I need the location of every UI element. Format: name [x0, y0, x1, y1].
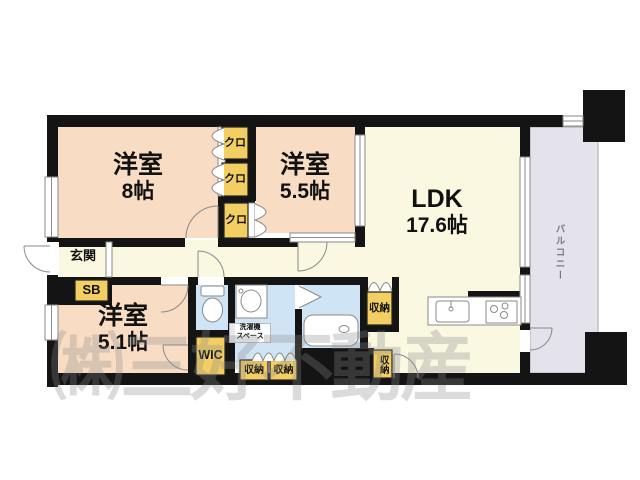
room-name: LDK [387, 186, 487, 214]
closet-label-1: クロ [222, 127, 248, 159]
room-fill-ldk [365, 127, 520, 373]
toilet-icon [201, 286, 224, 322]
closet-label-2: クロ [222, 163, 248, 196]
laundry-space-label: 洗濯機 スペース [229, 323, 271, 343]
storage-label-3: 収納 [367, 292, 392, 325]
pillar-top-right [583, 90, 625, 142]
storage-label-4: 収納 [373, 350, 392, 378]
closet-label-3: クロ [224, 203, 248, 238]
entrance-label: 玄関 [60, 249, 106, 263]
washbasin-icon [236, 285, 267, 318]
floorplan-graphic [0, 0, 640, 480]
shoe-box-label: SB [75, 280, 108, 301]
bathtub-icon [304, 315, 358, 346]
laundry-line2: スペース [236, 333, 263, 340]
ldk-label: LDK 17.6帖 [387, 186, 487, 237]
balcony-label: バルコニー [553, 222, 563, 284]
bedroom-small-label: 洋室 5.1帖 [73, 303, 173, 354]
room-size: 5.1帖 [73, 331, 173, 354]
room-name: 洋室 [255, 152, 355, 180]
floor-plan: 洋室 8帖 洋室 5.5帖 LDK 17.6帖 洋室 5.1帖 玄関 SB クロ… [0, 0, 640, 480]
bedroom-mid-label: 洋室 5.5帖 [255, 152, 355, 203]
room-size: 5.5帖 [255, 180, 355, 203]
stove-icon [486, 301, 517, 323]
room-size: 8帖 [88, 180, 188, 203]
bedroom-large-label: 洋室 8帖 [88, 152, 188, 203]
entrance-step [106, 242, 112, 277]
wic-label: WIC [196, 337, 225, 375]
storage-label-2: 収納 [270, 360, 297, 380]
room-size: 17.6帖 [387, 214, 487, 237]
kitchen-sink-icon [436, 301, 469, 322]
room-name: 洋室 [73, 303, 173, 331]
storage-label-1: 収納 [240, 360, 268, 380]
room-name: 洋室 [88, 152, 188, 180]
entrance-opening [46, 242, 59, 275]
balcony-door-opening [520, 330, 530, 352]
laundry-line1: 洗濯機 [240, 324, 261, 331]
